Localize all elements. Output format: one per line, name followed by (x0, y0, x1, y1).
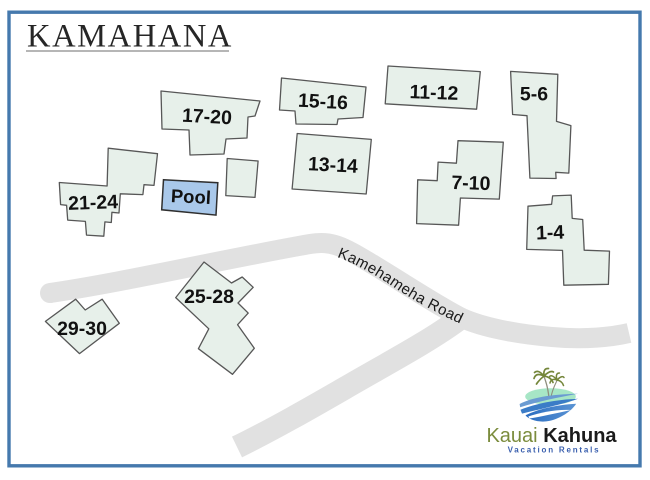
svg-text:Pool: Pool (170, 185, 211, 208)
svg-text:1-4: 1-4 (536, 222, 565, 245)
svg-text:21-24: 21-24 (68, 191, 119, 215)
svg-text:17-20: 17-20 (181, 105, 232, 130)
svg-text:15-16: 15-16 (297, 90, 348, 115)
svg-text:13-14: 13-14 (307, 153, 358, 178)
svg-text:7-10: 7-10 (451, 172, 491, 195)
svg-text:11-12: 11-12 (409, 81, 459, 105)
svg-text:25-28: 25-28 (184, 286, 234, 308)
svg-text:29-30: 29-30 (57, 318, 107, 340)
svg-text:KAMAHANA: KAMAHANA (27, 19, 233, 55)
svg-text:Kauai Kahuna: Kauai Kahuna (486, 425, 617, 447)
svg-text:5-6: 5-6 (520, 84, 548, 106)
svg-text:Vacation Rentals: Vacation Rentals (508, 446, 601, 455)
